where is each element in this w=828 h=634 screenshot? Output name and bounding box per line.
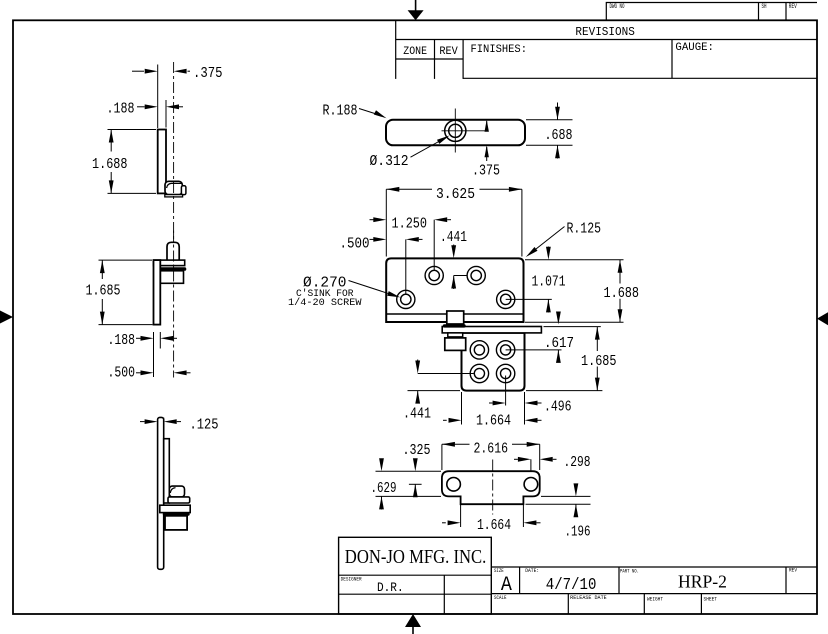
- svg-text:RELEASE DATE: RELEASE DATE: [570, 595, 607, 601]
- svg-text:ZONE: ZONE: [403, 46, 427, 58]
- svg-text:1.664: 1.664: [477, 517, 511, 534]
- svg-text:SH: SH: [762, 3, 767, 10]
- svg-text:GAUGE:: GAUGE:: [675, 42, 714, 54]
- svg-text:.375: .375: [193, 65, 223, 82]
- svg-text:HRP-2: HRP-2: [678, 572, 727, 592]
- svg-text:1.685: 1.685: [86, 283, 121, 300]
- svg-text:2.616: 2.616: [474, 441, 509, 458]
- svg-text:1.685: 1.685: [581, 353, 617, 370]
- svg-text:1.664: 1.664: [476, 413, 511, 430]
- svg-text:REV: REV: [789, 568, 797, 574]
- svg-text:1/4-20 SCREW: 1/4-20 SCREW: [288, 297, 362, 309]
- svg-text:REV: REV: [789, 3, 797, 10]
- svg-text:4/7/10: 4/7/10: [546, 576, 597, 595]
- svg-text:.196: .196: [565, 524, 591, 541]
- svg-text:.629: .629: [371, 480, 397, 497]
- svg-text:SCALE: SCALE: [494, 595, 507, 601]
- svg-text:DATE:: DATE:: [525, 568, 539, 574]
- svg-text:A: A: [501, 574, 512, 597]
- svg-text:DESIGNER: DESIGNER: [341, 577, 362, 583]
- svg-text:FINISHES:: FINISHES:: [471, 44, 528, 56]
- svg-text:WEIGHT: WEIGHT: [647, 597, 663, 603]
- svg-text:.188: .188: [107, 100, 135, 117]
- svg-text:D.R.: D.R.: [377, 580, 404, 595]
- svg-text:DON-JO MFG. INC.: DON-JO MFG. INC.: [345, 546, 487, 568]
- svg-text:Ø.312: Ø.312: [370, 153, 409, 170]
- svg-text:1.688: 1.688: [92, 156, 128, 173]
- svg-text:.688: .688: [545, 127, 573, 144]
- svg-text:1.250: 1.250: [392, 216, 428, 233]
- svg-text:REVISIONS: REVISIONS: [575, 25, 634, 39]
- svg-text:.441: .441: [403, 406, 431, 423]
- svg-text:.496: .496: [544, 399, 572, 416]
- svg-text:R.125: R.125: [567, 221, 602, 238]
- svg-text:.325: .325: [403, 442, 431, 459]
- svg-text:.500: .500: [108, 365, 136, 382]
- svg-text:.375: .375: [472, 163, 500, 180]
- svg-text:1.071: 1.071: [532, 274, 566, 291]
- svg-text:.125: .125: [190, 417, 219, 434]
- svg-text:SHEET: SHEET: [704, 597, 718, 603]
- svg-text:3.625: 3.625: [436, 186, 475, 203]
- svg-text:.500: .500: [340, 236, 370, 253]
- svg-text:DWG NO: DWG NO: [610, 3, 625, 10]
- svg-text:R.188: R.188: [323, 103, 358, 120]
- svg-text:.188: .188: [108, 332, 136, 349]
- svg-text:PART NO.: PART NO.: [620, 569, 639, 575]
- svg-text:REV: REV: [439, 46, 458, 58]
- svg-text:.298: .298: [564, 454, 591, 471]
- svg-text:.617: .617: [544, 335, 574, 352]
- svg-text:1.688: 1.688: [604, 285, 640, 302]
- svg-text:.441: .441: [440, 229, 467, 246]
